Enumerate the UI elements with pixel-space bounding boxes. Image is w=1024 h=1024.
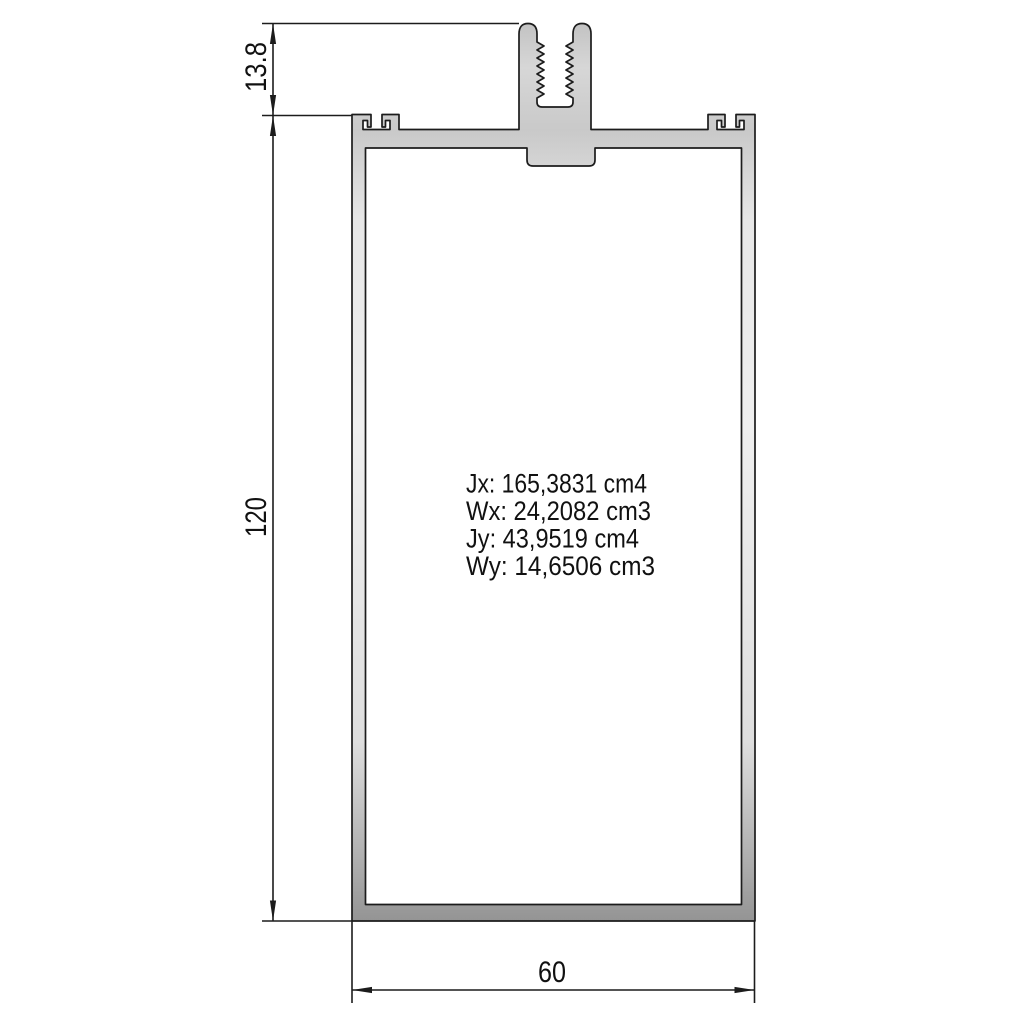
arrowhead-left bbox=[352, 987, 372, 993]
technical-drawing-canvas: 13.8 120 60 Jx: 165,3831 cm4 Wx: 24,2082… bbox=[0, 0, 1024, 1024]
dimension-label-13-8: 13.8 bbox=[240, 42, 273, 92]
property-wy: Wy: 14,6506 cm3 bbox=[466, 551, 655, 581]
property-jx: Jx: 165,3831 cm4 bbox=[466, 469, 647, 499]
arrowhead-down bbox=[270, 95, 276, 116]
dimension-60: 60 bbox=[352, 921, 755, 1003]
profile-drawing-svg: 13.8 120 60 Jx: 165,3831 cm4 Wx: 24,2082… bbox=[0, 0, 1024, 1024]
property-jy: Jy: 43,9519 cm4 bbox=[466, 524, 639, 554]
section-properties: Jx: 165,3831 cm4 Wx: 24,2082 cm3 Jy: 43,… bbox=[466, 469, 655, 582]
arrowhead-right bbox=[735, 987, 755, 993]
arrowhead-down bbox=[270, 901, 276, 922]
dimension-120: 120 bbox=[240, 116, 352, 922]
arrowhead-up bbox=[270, 116, 276, 137]
dimension-13-8: 13.8 bbox=[240, 24, 519, 116]
dimension-label-60: 60 bbox=[538, 956, 566, 989]
property-wx: Wx: 24,2082 cm3 bbox=[466, 496, 651, 526]
dimension-label-120: 120 bbox=[240, 497, 273, 537]
arrowhead-up bbox=[270, 24, 276, 45]
